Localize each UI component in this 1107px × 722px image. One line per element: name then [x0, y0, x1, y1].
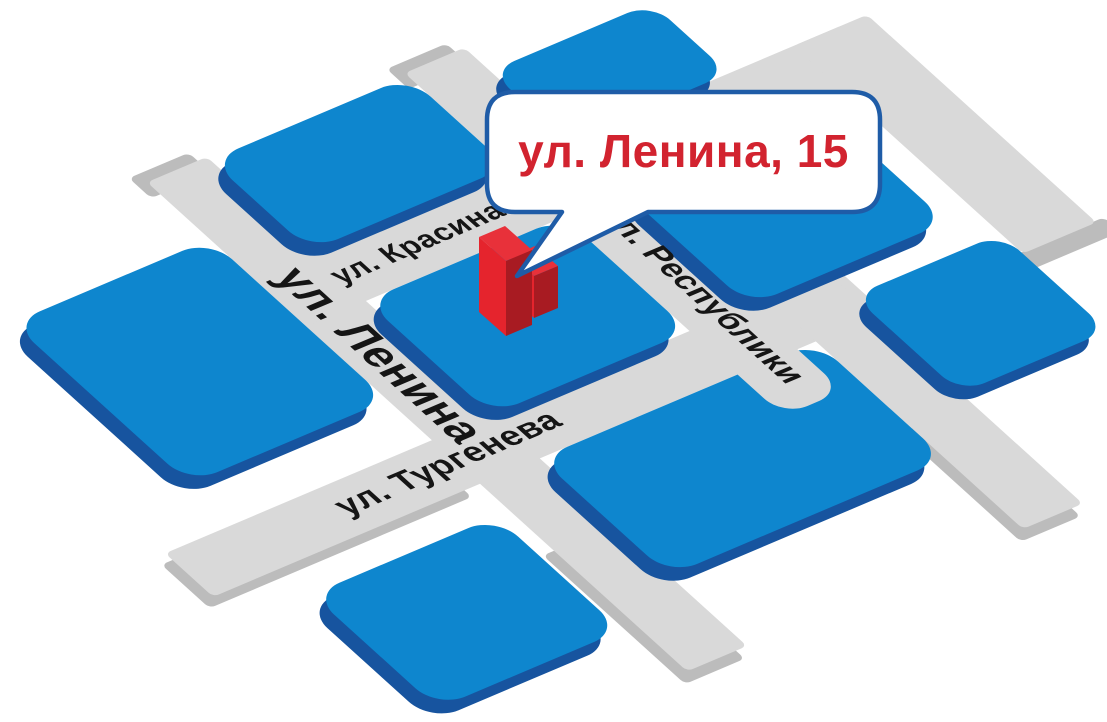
- address-callout-label: ул. Ленина, 15: [487, 92, 880, 210]
- map-canvas: ул. Красина ул. Тургенева ул. Ленина ул.…: [0, 0, 1107, 722]
